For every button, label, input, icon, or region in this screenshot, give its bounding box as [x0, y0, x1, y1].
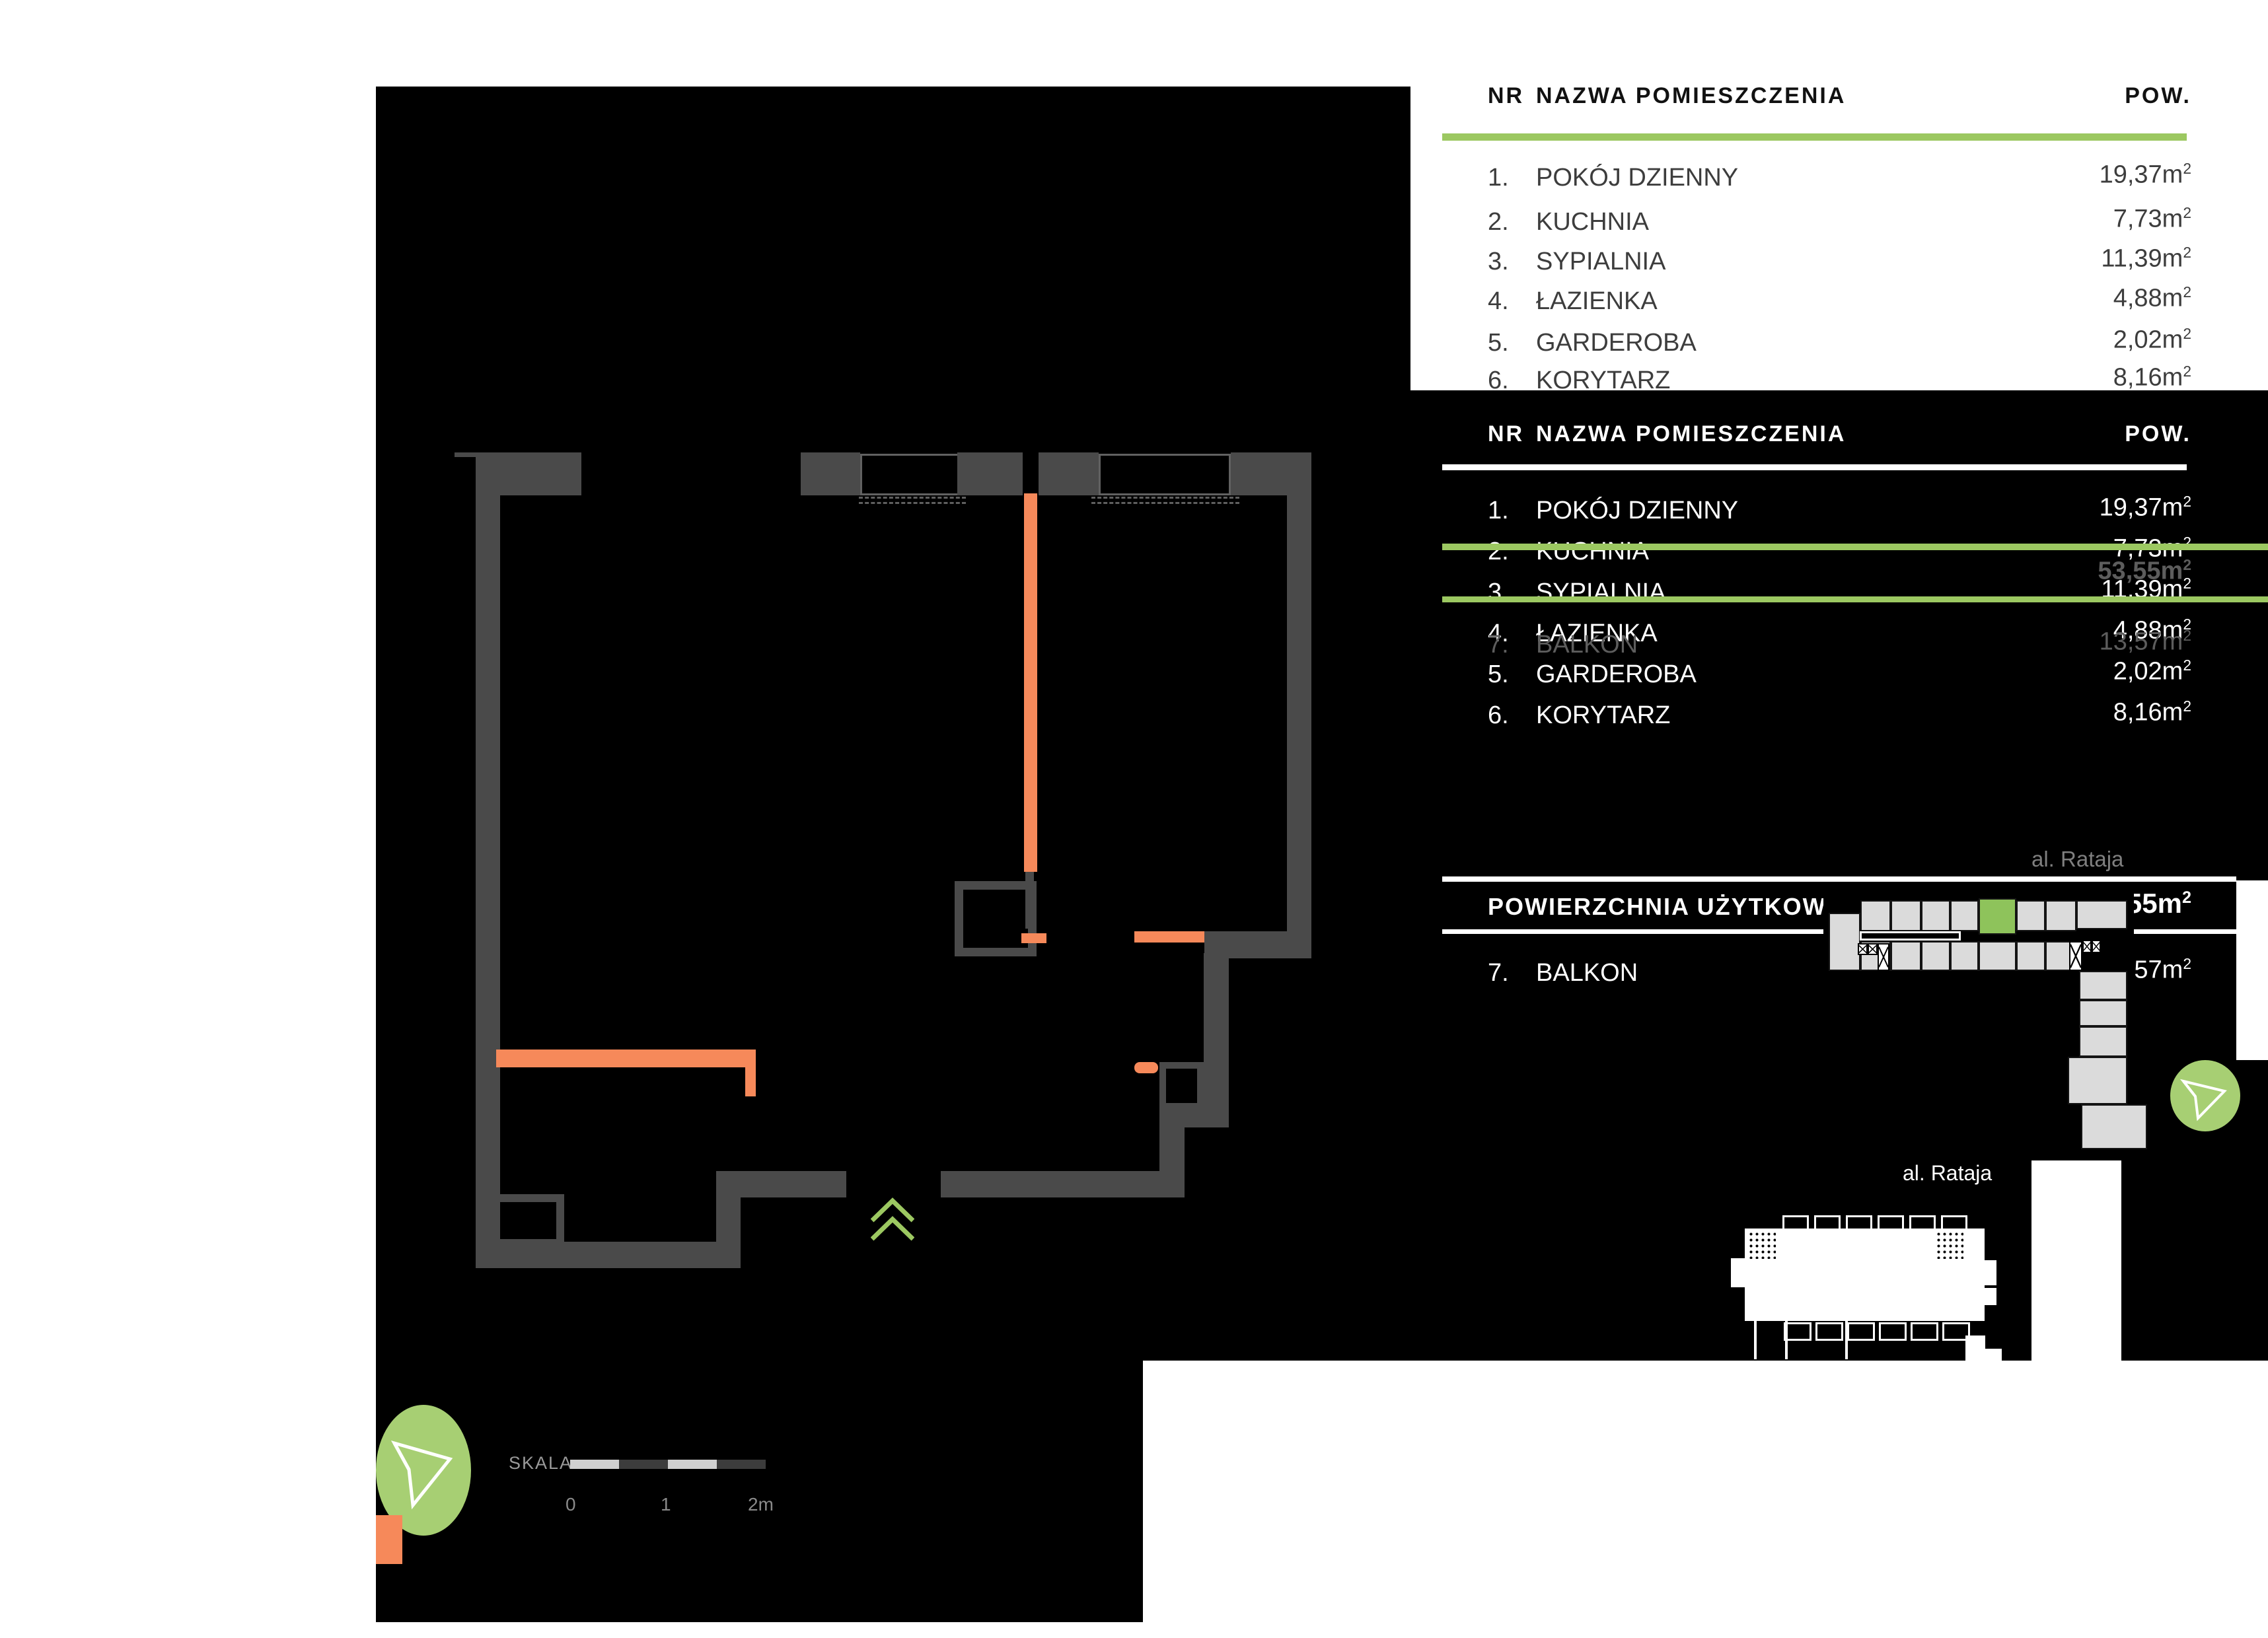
- site-window: [1847, 1322, 1875, 1341]
- stairs-icon: [1868, 943, 1878, 955]
- dark-table-header-pow: POW.: [1488, 421, 2191, 447]
- partition-orange-vertical: [1024, 493, 1037, 872]
- scale-tick-2: 2m: [748, 1494, 774, 1515]
- door-opening-bath: [1134, 1062, 1158, 1073]
- keyplan-unit: [2016, 900, 2045, 931]
- wall-right: [1287, 452, 1311, 953]
- site-step-1: [1965, 1335, 1985, 1361]
- wall-bath-vertical: [1204, 953, 1229, 1127]
- keyplan-unit: [2068, 1057, 2127, 1104]
- plan-canvas-lower: [376, 1361, 1143, 1622]
- window-1-sill: [859, 497, 966, 499]
- stairs-icon: [2082, 940, 2092, 953]
- site-tab-right-1: [1985, 1260, 1996, 1285]
- keyplan-unit-highlighted: [1979, 898, 2016, 935]
- keyplan-unit: [1921, 900, 1950, 931]
- window-2: [1099, 454, 1231, 495]
- wall-top-lip: [455, 452, 477, 457]
- highlight-line-kuchnia: [1442, 544, 2268, 550]
- wall-bath-corner-lip: [1229, 953, 1311, 958]
- site-hatch-corner-right: [1936, 1231, 1963, 1259]
- table-row: 2.KUCHNIA7,73m2: [1488, 208, 2191, 237]
- floor-plan-page: SKALA 0 1 2m NR NAZWA POMIESZCZENIA POW.…: [0, 0, 2268, 1638]
- garderoba-box: [955, 881, 1037, 956]
- dark-table-row: 1.POKÓJ DZIENNY19,37m2: [1488, 497, 2191, 526]
- scale-seg-4: [717, 1460, 766, 1469]
- keyplan-unit: [1950, 941, 1979, 971]
- scale-tick-1: 1: [661, 1494, 671, 1515]
- scale-seg-2: [619, 1460, 668, 1469]
- dark-table-row: 5.GARDEROBA2,02m2: [1488, 660, 2191, 690]
- highlight-line-sypialnia: [1442, 596, 2268, 602]
- wall-top-pier-right: [1039, 452, 1099, 495]
- right-margin-strip: [2236, 880, 2268, 1060]
- window-1: [860, 454, 959, 495]
- keyplan-unit: [1860, 900, 1891, 931]
- site-line: [1785, 1321, 1788, 1359]
- keyplan-unit: [1891, 941, 1921, 971]
- stairs-icon: [2092, 940, 2101, 953]
- table-row: 5.GARDEROBA2,02m2: [1488, 329, 2191, 358]
- site-tab-left: [1731, 1258, 1745, 1287]
- site-line: [1845, 1321, 1848, 1359]
- table-header-pow: POW.: [1488, 83, 2191, 109]
- site-window: [1911, 1322, 1938, 1341]
- stairs-icon: [1858, 943, 1868, 955]
- kitchen-wall-orange: [496, 1050, 756, 1067]
- summary-rule-top: [1442, 876, 2236, 882]
- door-opening-garderoba: [1021, 933, 1046, 943]
- dark-table-row: 3.SYPIALNIA11,39m2: [1488, 579, 2191, 608]
- table-row: 3.SYPIALNIA11,39m2: [1488, 248, 2191, 277]
- keyplan-unit: [2079, 1000, 2127, 1026]
- dark-table-header-rule: [1442, 464, 2187, 470]
- keyplan-unit: [2079, 1026, 2127, 1057]
- closet-box: [492, 1194, 564, 1247]
- keyplan-unit: [2016, 941, 2045, 971]
- kitchen-wall-orange-drop: [745, 1067, 756, 1096]
- stairs-icon: [2069, 941, 2082, 971]
- entry-chevron-icon: [871, 1195, 914, 1244]
- scale-seg-1: [570, 1460, 619, 1469]
- scale-label: SKALA: [509, 1453, 573, 1474]
- site-window: [1784, 1322, 1811, 1341]
- street-label-top: al. Rataja: [2031, 847, 2123, 872]
- table-header-rule-green: [1442, 133, 2187, 141]
- keyplan-unit: [2076, 900, 2127, 929]
- keyplan-unit: [1829, 913, 1860, 971]
- site-hatch-corner-left: [1748, 1231, 1776, 1259]
- legend-orange-mark: [376, 1515, 402, 1564]
- wall-bottom-left-seg: [741, 1171, 846, 1197]
- ghost-balkon-row: 7.BALKON13,57m2: [1488, 631, 2191, 660]
- keyplan-unit: [1979, 941, 2016, 971]
- stairs-icon: [1878, 943, 1889, 971]
- keyplan-unit: [2045, 900, 2076, 931]
- keyplan-unit: [2079, 971, 2127, 1000]
- wall-top-pier-left: [957, 452, 1023, 495]
- keyplan-unit: [2081, 1104, 2147, 1149]
- wall-bath-corner: [1204, 931, 1311, 953]
- dark-table-row: 6.KORYTARZ8,16m2: [1488, 701, 2191, 730]
- table-row: 1.POKÓJ DZIENNY19,37m2: [1488, 164, 2191, 193]
- scale-tick-0: 0: [566, 1494, 576, 1515]
- window-2-sill: [1091, 497, 1239, 499]
- shaft-box: [1159, 1062, 1204, 1110]
- site-window: [1879, 1322, 1907, 1341]
- keyplan-unit: [1950, 900, 1979, 931]
- window-2-sill-2: [1091, 502, 1239, 504]
- plan-canvas: [376, 87, 1410, 1361]
- door-opening-bedroom: [1134, 931, 1204, 943]
- site-step-2: [1985, 1349, 2002, 1361]
- scale-seg-3: [668, 1460, 717, 1469]
- wall-left: [476, 452, 500, 1268]
- compass-icon-small: [2170, 1060, 2240, 1131]
- window-1-sill-2: [859, 502, 966, 504]
- table-row: 6.KORYTARZ8,16m2: [1488, 367, 2191, 396]
- table-row: 4.ŁAZIENKA4,88m2: [1488, 287, 2191, 316]
- site-window: [1815, 1322, 1843, 1341]
- keyplan-balcony-strip: [1860, 931, 1961, 941]
- wall-bottom-right-seg: [941, 1171, 1185, 1197]
- keyplan-unit: [1891, 900, 1921, 931]
- street-label-bottom: al. Rataja: [1903, 1161, 1992, 1186]
- site-road-strip: [2031, 1160, 2121, 1361]
- site-line: [1754, 1321, 1757, 1359]
- wall-top-block-b: [801, 452, 860, 495]
- site-tab-right-2: [1985, 1288, 1996, 1305]
- keyplan-unit: [1921, 941, 1950, 971]
